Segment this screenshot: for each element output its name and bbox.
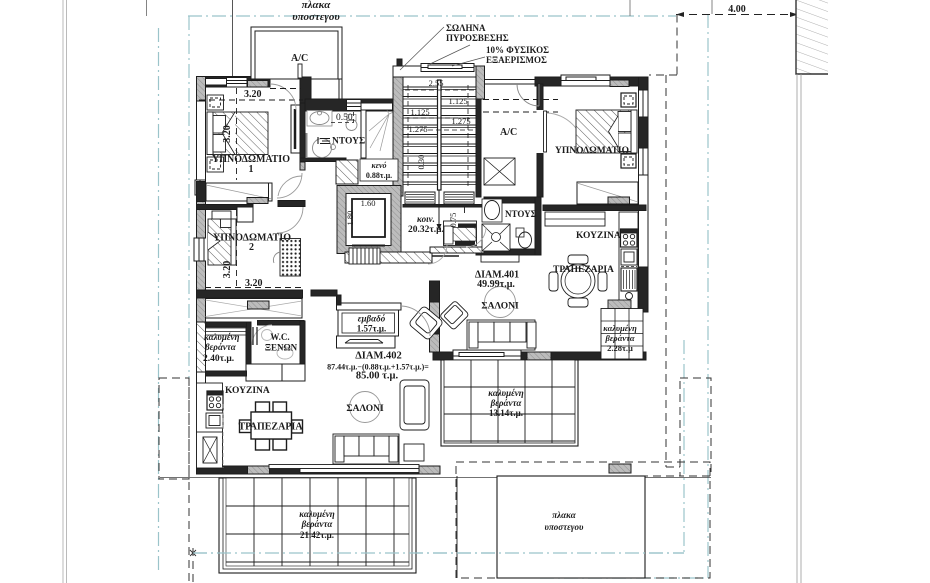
svg-text:3.20: 3.20 bbox=[245, 278, 263, 289]
svg-text:0.30: 0.30 bbox=[416, 155, 426, 170]
svg-text:A/C: A/C bbox=[500, 127, 517, 138]
svg-text:ΚΟΥΖΙΝΑ: ΚΟΥΖΙΝΑ bbox=[576, 231, 621, 241]
svg-text:0.50: 0.50 bbox=[336, 113, 353, 123]
svg-text:καλυμένη: καλυμένη bbox=[204, 332, 240, 342]
svg-text:21.42τ.μ.: 21.42τ.μ. bbox=[300, 530, 334, 540]
svg-text:13.14τ.μ.: 13.14τ.μ. bbox=[489, 408, 523, 418]
svg-text:1.125: 1.125 bbox=[410, 107, 429, 117]
svg-text:1.275: 1.275 bbox=[451, 116, 470, 126]
svg-text:ΤΡΑΠΕΖΑΡΙΑ: ΤΡΑΠΕΖΑΡΙΑ bbox=[553, 265, 614, 275]
svg-text:1.60: 1.60 bbox=[361, 198, 376, 208]
svg-text:ΝΤΟΥΣ: ΝΤΟΥΣ bbox=[505, 209, 537, 219]
svg-text:4.00: 4.00 bbox=[728, 4, 746, 15]
svg-text:2.55: 2.55 bbox=[429, 78, 444, 88]
svg-text:49.99τ.μ.: 49.99τ.μ. bbox=[477, 279, 515, 290]
svg-text:ΤΡΑΠΕΖΑΡΙΑ: ΤΡΑΠΕΖΑΡΙΑ bbox=[238, 422, 303, 433]
svg-text:ΣΑΛΟΝΙ: ΣΑΛΟΝΙ bbox=[481, 302, 519, 312]
svg-text:ΣΩΛΗΝΑ: ΣΩΛΗΝΑ bbox=[446, 23, 486, 33]
svg-text:καλυμένη: καλυμένη bbox=[299, 509, 335, 519]
svg-text:A/C: A/C bbox=[291, 53, 308, 64]
svg-text:3.20: 3.20 bbox=[222, 261, 233, 279]
svg-text:κοιν.: κοιν. bbox=[417, 214, 435, 224]
svg-text:ΠΥΡΟΣΒΕΣΗΣ: ΠΥΡΟΣΒΕΣΗΣ bbox=[446, 33, 509, 43]
svg-text:ΕΞΑΕΡΙΣΜΟΣ: ΕΞΑΕΡΙΣΜΟΣ bbox=[486, 55, 547, 65]
svg-text:10% ΦΥΣΙΚΟΣ: 10% ΦΥΣΙΚΟΣ bbox=[486, 45, 549, 55]
svg-text:85.00 τ.μ.: 85.00 τ.μ. bbox=[356, 371, 399, 382]
svg-text:εμβαδό: εμβαδό bbox=[358, 314, 386, 324]
svg-text:2.40τ.μ.: 2.40τ.μ. bbox=[203, 354, 234, 364]
svg-text:ΥΠΝΟΔΩΜΑΤΙΟ: ΥΠΝΟΔΩΜΑΤΙΟ bbox=[555, 146, 629, 156]
svg-text:ΔΙΑΜ.402: ΔΙΑΜ.402 bbox=[355, 351, 402, 362]
svg-text:20.32τ.μ.: 20.32τ.μ. bbox=[408, 225, 444, 235]
svg-text:βεράντα: βεράντα bbox=[490, 398, 523, 408]
svg-text:3.20: 3.20 bbox=[244, 89, 262, 100]
svg-text:βεράντα: βεράντα bbox=[301, 519, 334, 529]
svg-text:ΝΤΟΥΣ: ΝΤΟΥΣ bbox=[332, 137, 365, 147]
svg-text:1.275: 1.275 bbox=[408, 124, 427, 134]
svg-text:1.80: 1.80 bbox=[345, 211, 355, 226]
svg-text:2.28τ.μ: 2.28τ.μ bbox=[607, 343, 633, 353]
svg-text:0.88τ.μ.: 0.88τ.μ. bbox=[366, 171, 392, 180]
svg-text:ΣΑΛΟΝΙ: ΣΑΛΟΝΙ bbox=[346, 404, 384, 414]
svg-text:2: 2 bbox=[249, 242, 254, 253]
svg-text:κενό: κενό bbox=[371, 161, 386, 170]
svg-text:W.C.: W.C. bbox=[270, 332, 289, 342]
svg-text:1.57τ.μ.: 1.57τ.μ. bbox=[357, 324, 387, 334]
svg-text:βεράντα: βεράντα bbox=[204, 342, 237, 352]
svg-text:ΚΟΥΖΙΝΑ: ΚΟΥΖΙΝΑ bbox=[225, 386, 270, 396]
svg-text:1.125: 1.125 bbox=[448, 96, 467, 106]
svg-text:καλυμένη: καλυμένη bbox=[488, 388, 524, 398]
svg-text:1: 1 bbox=[249, 164, 254, 175]
svg-text:πλακα: πλακα bbox=[302, 0, 332, 11]
svg-text:ΞΕΝΩΝ: ΞΕΝΩΝ bbox=[265, 343, 298, 353]
svg-text:3.20: 3.20 bbox=[222, 125, 233, 143]
svg-text:0.75: 0.75 bbox=[448, 213, 458, 228]
svg-text:υποστεγου: υποστεγου bbox=[545, 522, 584, 532]
svg-text:πλακα: πλακα bbox=[552, 510, 576, 520]
svg-text:βεράντα: βεράντα bbox=[604, 333, 634, 343]
svg-text:καλυμένη: καλυμένη bbox=[603, 323, 637, 333]
svg-text:υποστεγου: υποστεγου bbox=[292, 11, 340, 23]
